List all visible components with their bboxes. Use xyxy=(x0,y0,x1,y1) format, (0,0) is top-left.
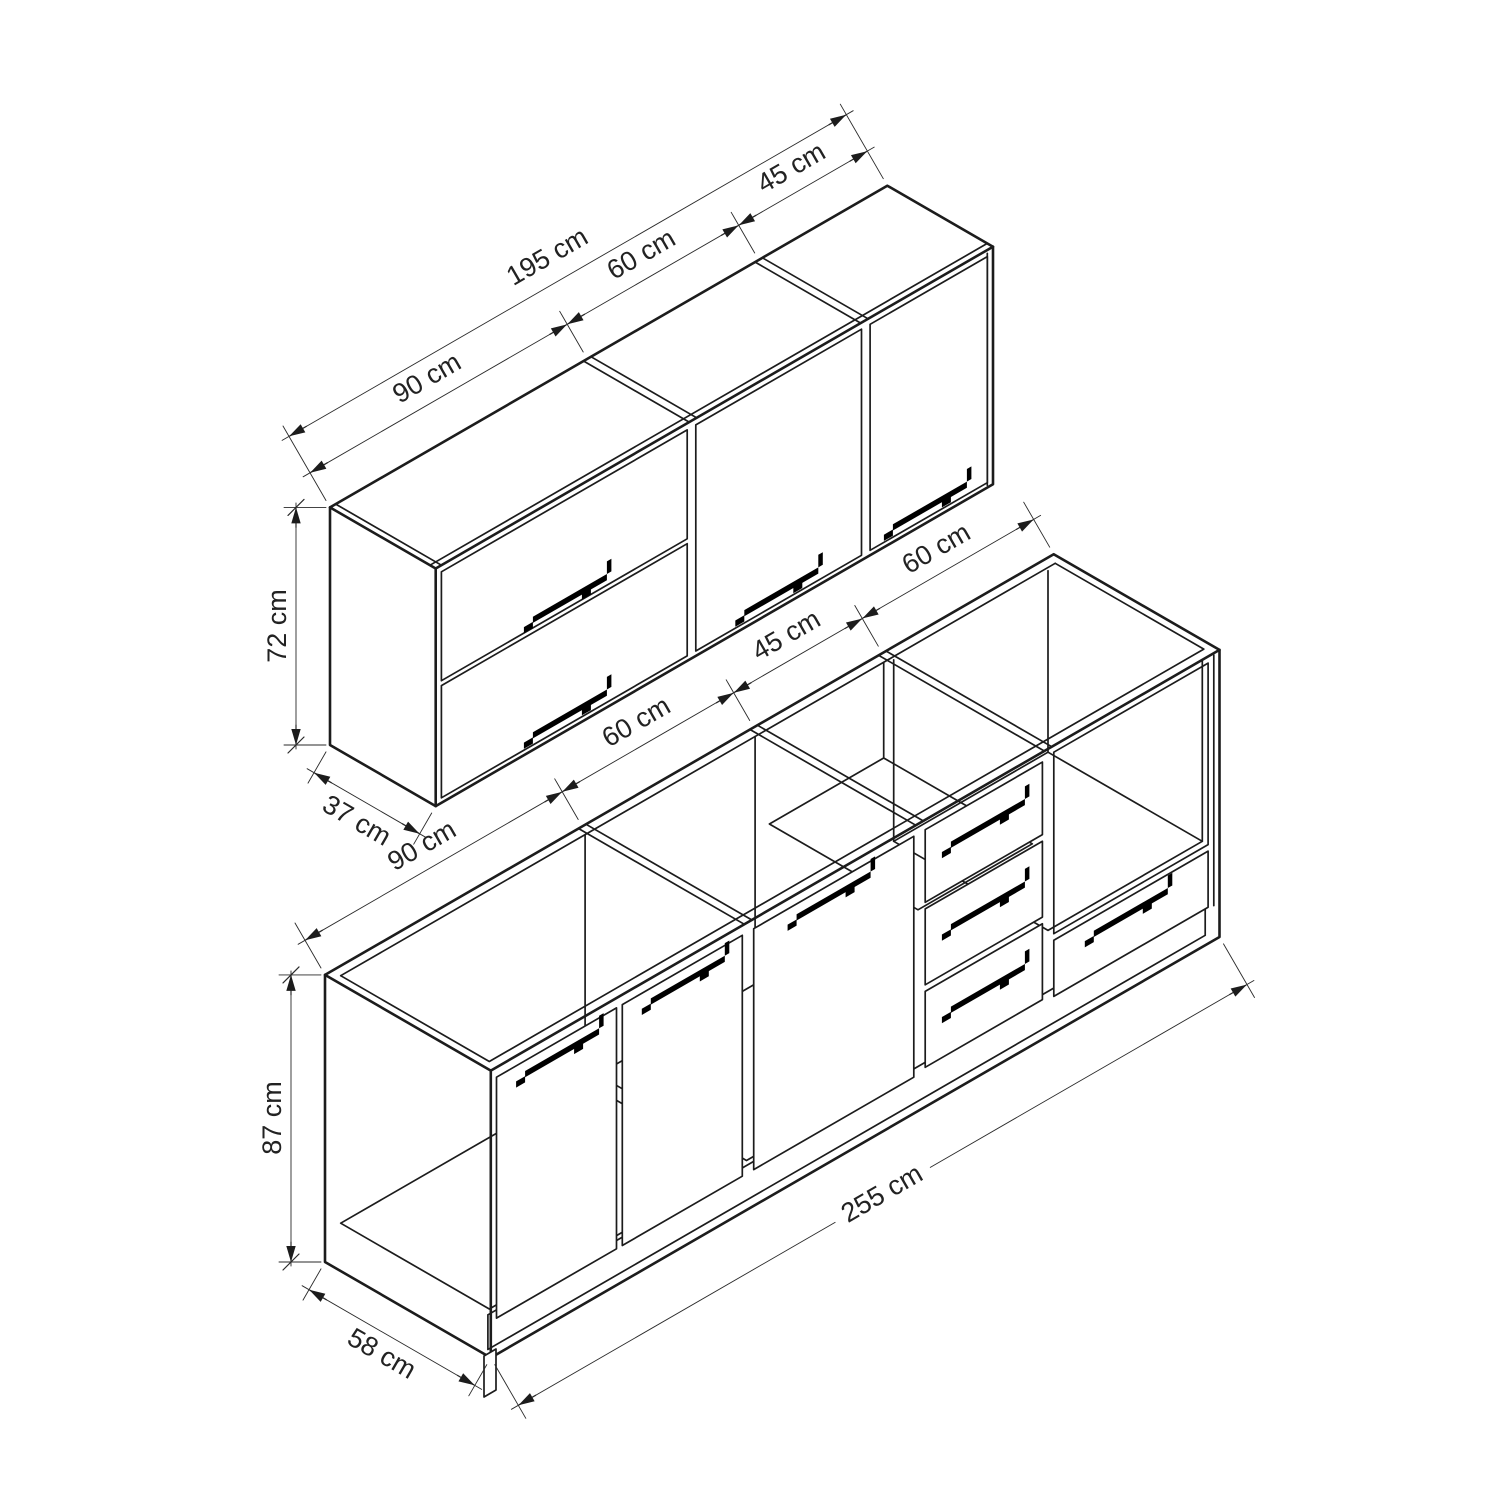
isometric-drawing-svg: 90 cm 60 cm 45 cm 195 cm 72 cm 37 cm xyxy=(0,0,1500,1500)
wall-section-90-label: 90 cm xyxy=(387,347,466,410)
base-height-label: 87 cm xyxy=(257,1081,287,1155)
wall-section-60-label: 60 cm xyxy=(602,223,681,286)
wall-total-width-label: 195 cm xyxy=(501,221,593,291)
cabinet-dimension-diagram: 90 cm 60 cm 45 cm 195 cm 72 cm 37 cm xyxy=(0,0,1500,1500)
wall-depth-label: 37 cm xyxy=(317,789,396,852)
wall-section-45-label: 45 cm xyxy=(752,136,831,199)
base-front-foot xyxy=(484,1349,496,1397)
wall-height-label: 72 cm xyxy=(262,589,292,663)
base-total-width-label: 255 cm xyxy=(836,1158,928,1228)
